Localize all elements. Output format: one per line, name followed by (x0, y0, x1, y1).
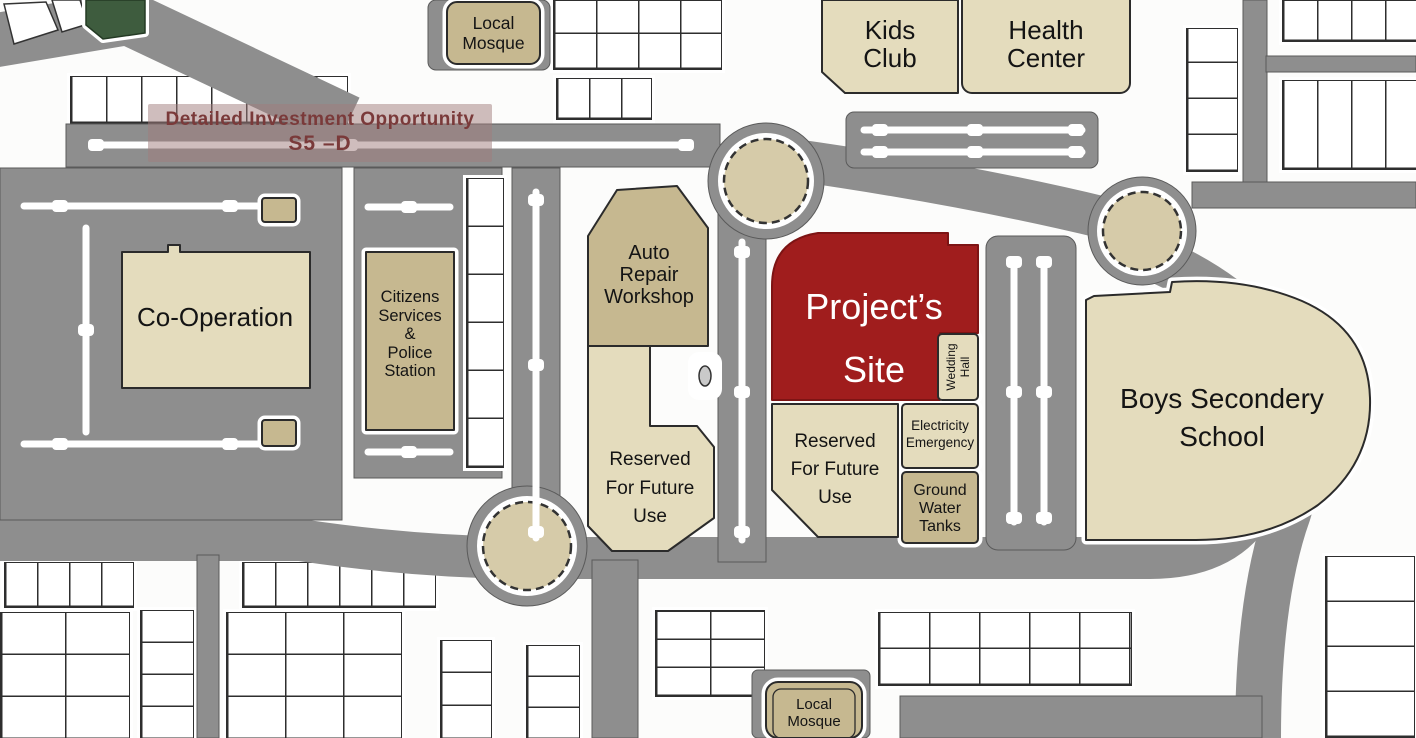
road-topright-vertical (1243, 0, 1267, 192)
roundabout-2-island (1103, 192, 1181, 270)
roundabout-3-island (483, 502, 571, 590)
label-kids-club: Kids Club (822, 16, 958, 72)
label-wedding-hall: Wedding Hall (944, 335, 972, 399)
label-local-mosque-bottom: Local Mosque (766, 696, 862, 730)
label-electricity: Electricity Emergency (902, 418, 978, 451)
title-line2: S5 –D (148, 132, 492, 156)
building-small-1 (262, 198, 296, 222)
label-local-mosque-top: Local Mosque (447, 13, 540, 53)
map-title: Detailed Investment Opportunity S5 –D (148, 108, 492, 156)
plot-grid (466, 178, 504, 468)
label-citizens-services: Citizens Services & Police Station (362, 288, 458, 381)
site-plan-map: Detailed Investment Opportunity S5 –D Lo… (0, 0, 1416, 738)
label-ground-water: Ground Water Tanks (902, 482, 978, 536)
road-bottom-stub-2 (592, 560, 638, 738)
landmark-icon (688, 352, 722, 400)
building-small-2 (262, 420, 296, 446)
parking-clubs (846, 112, 1098, 168)
label-co-operation: Co-Operation (118, 304, 312, 330)
label-reserved-center: Reserved For Future Use (772, 428, 898, 512)
label-reserved-left: Reserved For Future Use (586, 446, 714, 532)
road-topright-horizontal (1192, 182, 1416, 208)
road-bottom-stub-1 (197, 555, 219, 738)
road-r1-r2 (795, 160, 1105, 218)
label-projects-site: Project’s Site (778, 275, 970, 401)
park-green (86, 0, 145, 39)
parking-site-school (986, 236, 1076, 550)
label-auto-repair: Auto Repair Workshop (588, 242, 710, 308)
label-health-center: Health Center (962, 16, 1130, 72)
label-boys-school: Boys Secondery School (1090, 380, 1354, 456)
road-bottom-band (900, 696, 1262, 738)
title-line1: Detailed Investment Opportunity (148, 108, 492, 132)
road-topright-branch (1266, 56, 1416, 72)
roundabout-1-island (724, 139, 808, 223)
